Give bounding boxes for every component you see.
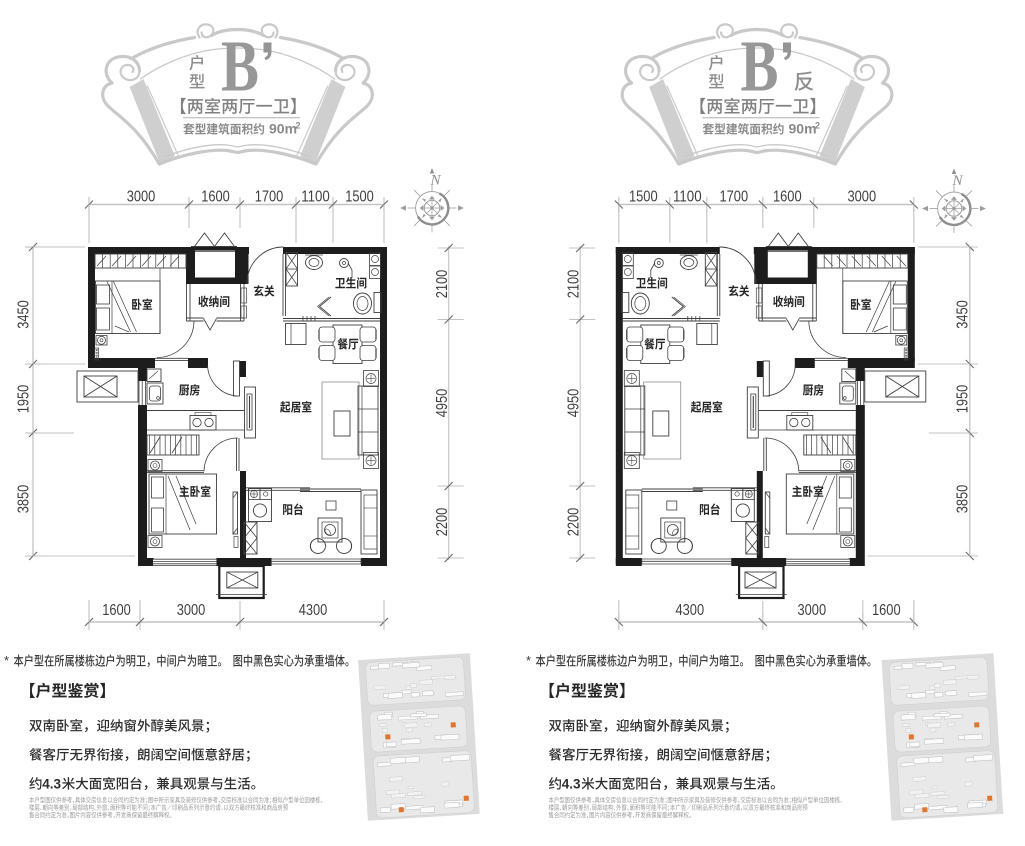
svg-text:B: B xyxy=(221,27,259,107)
svg-text:2: 2 xyxy=(296,121,301,131)
svg-text:N: N xyxy=(951,173,963,189)
svg-text:1600: 1600 xyxy=(201,189,230,206)
svg-text:4300: 4300 xyxy=(299,602,328,619)
svg-text:3000: 3000 xyxy=(848,189,877,206)
svg-text:N: N xyxy=(429,173,441,189)
svg-text:3450: 3450 xyxy=(16,300,33,329)
svg-text:1100: 1100 xyxy=(673,189,702,206)
svg-text:1950: 1950 xyxy=(955,384,972,413)
svg-text:1700: 1700 xyxy=(720,189,749,206)
svg-text:3000: 3000 xyxy=(177,602,206,619)
svg-text:2100: 2100 xyxy=(434,269,451,298)
svg-text:B: B xyxy=(741,27,779,107)
svg-text:2100: 2100 xyxy=(566,269,583,298)
svg-text:3850: 3850 xyxy=(16,484,33,513)
svg-text:3000: 3000 xyxy=(798,602,827,619)
svg-text:90m: 90m xyxy=(269,121,297,137)
svg-text:4.3: 4.3 xyxy=(42,777,61,792)
svg-text:2200: 2200 xyxy=(434,507,451,536)
svg-text:*: * xyxy=(526,653,531,668)
svg-text:4.3: 4.3 xyxy=(562,777,581,792)
svg-text:3850: 3850 xyxy=(955,484,972,513)
svg-text:3000: 3000 xyxy=(127,189,156,206)
svg-text:90m: 90m xyxy=(789,121,817,137)
svg-text:3450: 3450 xyxy=(955,300,972,329)
svg-text:1600: 1600 xyxy=(773,189,802,206)
svg-text:1600: 1600 xyxy=(102,602,131,619)
svg-text:1500: 1500 xyxy=(629,189,658,206)
svg-text:4300: 4300 xyxy=(676,602,705,619)
svg-text:*: * xyxy=(4,653,9,668)
svg-text:2: 2 xyxy=(815,121,820,131)
svg-text:4950: 4950 xyxy=(566,388,583,417)
svg-text:1700: 1700 xyxy=(255,189,284,206)
svg-text:1600: 1600 xyxy=(872,602,901,619)
svg-text:2200: 2200 xyxy=(566,507,583,536)
svg-text:1500: 1500 xyxy=(345,189,374,206)
svg-text:1100: 1100 xyxy=(301,189,330,206)
svg-text:4950: 4950 xyxy=(434,388,451,417)
svg-text:1950: 1950 xyxy=(16,384,33,413)
